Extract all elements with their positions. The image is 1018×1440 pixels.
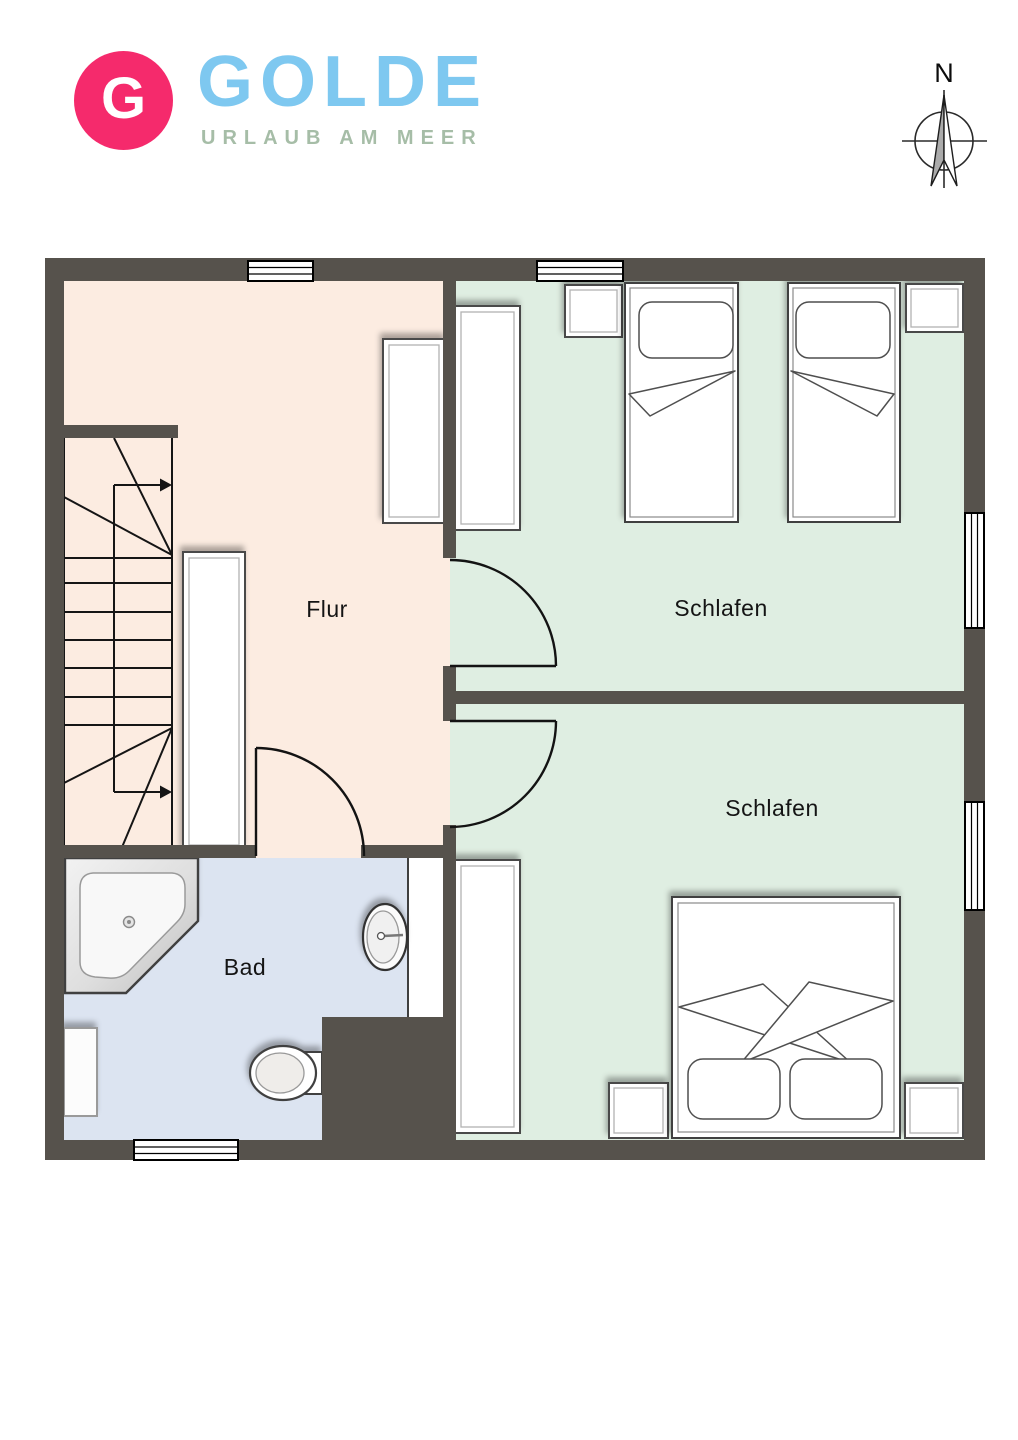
wall-stair-stub (45, 425, 178, 438)
floorplan-drawing (0, 0, 1018, 1440)
wall-bedroom-divider (443, 691, 964, 704)
pillow (790, 1059, 882, 1119)
room-label-schlafen-bottom: Schlafen (692, 795, 852, 822)
washbasin (363, 904, 407, 970)
radiator (64, 1028, 97, 1116)
nightstand (905, 1083, 963, 1138)
window (248, 261, 313, 281)
nightstand (565, 285, 622, 337)
double-bed (672, 897, 900, 1138)
wall-hall-bath-right (361, 845, 456, 858)
wall-outer-left (45, 258, 64, 1160)
room-label-flur: Flur (247, 596, 407, 623)
wall-outer-right (964, 258, 985, 1160)
stair-side-wardrobe (183, 552, 245, 851)
wall-hall-bath-left (45, 845, 256, 858)
duct-niche (408, 858, 445, 1017)
room-label-bad: Bad (165, 954, 325, 981)
room-label-schlafen-top: Schlafen (641, 595, 801, 622)
floorplan-page: G GOLDE URLAUB AM MEER N (0, 0, 1018, 1440)
wall-hall-bedroom-upper (443, 281, 456, 558)
pillow (639, 302, 733, 358)
faucet-icon (383, 935, 403, 936)
window (965, 513, 984, 628)
bedroom-bottom-wardrobe (455, 860, 520, 1133)
nightstand (609, 1083, 668, 1138)
wall-chimney-block (322, 1017, 456, 1140)
window (965, 802, 984, 910)
window (537, 261, 623, 281)
toilet (250, 1046, 322, 1100)
window (134, 1140, 238, 1160)
pillow (688, 1059, 780, 1119)
pillow (796, 302, 890, 358)
wall-outer-top (45, 258, 985, 281)
bedroom-top-wardrobe (455, 306, 520, 530)
nightstand (906, 284, 963, 332)
single-bed (625, 283, 738, 522)
single-bed (788, 283, 900, 522)
hallway-wardrobe (383, 339, 445, 523)
